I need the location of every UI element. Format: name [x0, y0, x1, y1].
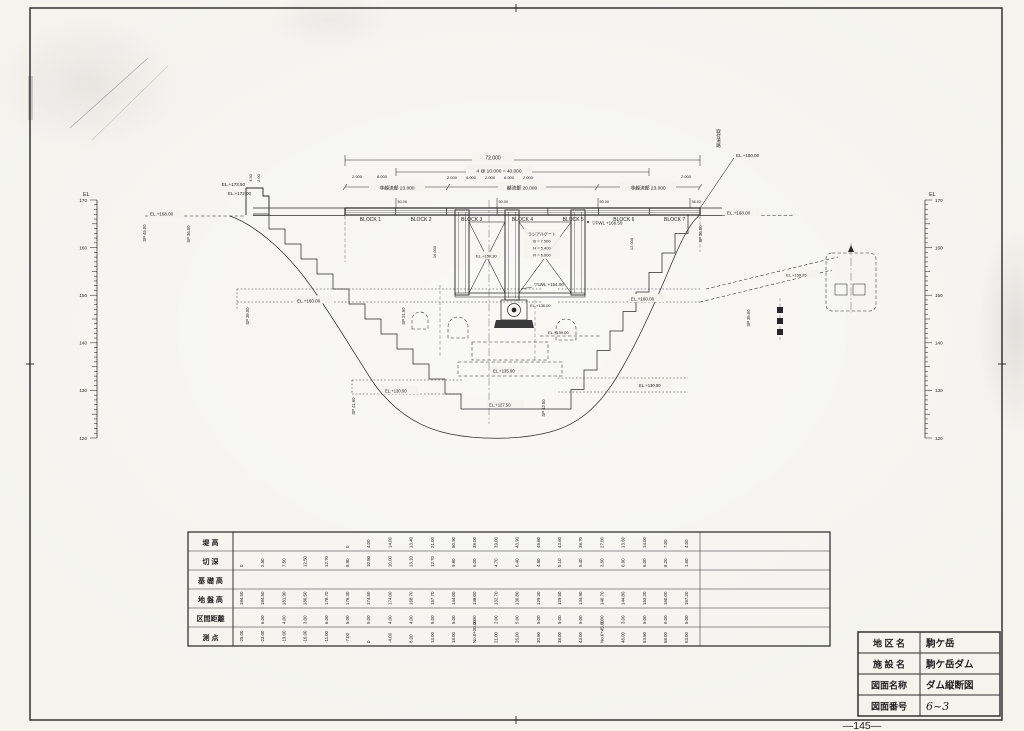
- table-value: 27.00: [599, 536, 604, 548]
- el-label: EL.+168.00: [150, 212, 174, 217]
- table-value: 5.10: [557, 558, 562, 567]
- table-value: 13.40: [409, 536, 414, 548]
- table-value: 18.00: [451, 631, 456, 643]
- hoist-axle: [512, 308, 517, 313]
- spillway-structure: ラジアルゲート B = 7.500 H = 5.400 R = 6.000 EL…: [455, 210, 585, 328]
- shaft-block: [777, 329, 783, 335]
- table-value: 0: [366, 640, 371, 643]
- table-row-label: 測 点: [203, 633, 219, 642]
- table-value: 181.90: [281, 591, 286, 605]
- table-value: 138.00: [472, 591, 477, 605]
- gate-r: R = 6.000: [533, 253, 551, 258]
- scale-tick-label: 160: [935, 245, 943, 250]
- dim-small: 6.000: [466, 175, 477, 180]
- el-label: EL.+160.00: [297, 299, 321, 304]
- table-value: 174.00: [387, 591, 392, 605]
- joint-mark-label: 50.00: [499, 200, 509, 204]
- sp-label: SP 35.00: [746, 309, 751, 327]
- table-value: 174.50: [366, 591, 371, 605]
- table-value: 7.00: [663, 539, 668, 548]
- table-value: 5.00: [366, 615, 371, 624]
- table-value: 144.00: [451, 591, 456, 605]
- sp-label: SP 21.50: [401, 307, 406, 325]
- table-value: 5.00: [345, 615, 350, 624]
- stilling-basin-upper: [472, 342, 548, 360]
- foundation-detail: EL.+135.00 EL.+127.50: [412, 312, 576, 408]
- table-value: 2.00: [493, 615, 498, 624]
- fold-line: [92, 66, 168, 140]
- el-label: EL.+159.30: [476, 254, 497, 259]
- outlet-bay: [853, 284, 865, 295]
- joint-mark-label: 50.00: [398, 200, 408, 204]
- dim-spacing-label: 4 @ 10.000 = 40.000: [476, 169, 521, 175]
- table-value: 6.00: [324, 615, 329, 624]
- border-rect: [30, 8, 1002, 720]
- gate-bay-dim: 12.000: [629, 237, 634, 250]
- table-value: 160.00: [663, 591, 668, 605]
- dim-small: 2.000: [523, 175, 534, 180]
- table-value: 5.00: [430, 615, 435, 624]
- table-value: 140.70: [599, 591, 604, 605]
- table-value: 6.00: [663, 615, 668, 624]
- table-value: 3.60: [599, 558, 604, 567]
- table-value: 4.00: [366, 539, 371, 548]
- table-row-label: 堤 高: [203, 538, 219, 547]
- title-label-facility: 施 設 名: [873, 659, 905, 670]
- dim-total-label: 72.000: [485, 156, 501, 162]
- scale-tick-label: 120: [935, 436, 943, 441]
- top-dimensions: 72.000 4 @ 10.000 = 40.000 非越流部 23.000 越…: [249, 152, 702, 258]
- block-label: BLOCK 3: [461, 217, 482, 223]
- table-value: -16.00: [303, 630, 308, 643]
- table-value: 39.00: [493, 536, 498, 548]
- table-value: 48.00: [621, 631, 626, 643]
- sp-label: SP 41.60: [351, 397, 356, 415]
- table-value: 50.90: [451, 536, 456, 548]
- parapet-dim: 2.00: [257, 174, 261, 181]
- table-value: 12.50: [303, 555, 308, 567]
- table-value: 8.90: [345, 558, 350, 567]
- table-row-label: 切 深: [203, 557, 219, 566]
- table-value: 8.20: [663, 558, 668, 567]
- table-value: 58.00: [663, 631, 668, 643]
- el-label: EL.+139.00: [548, 330, 569, 335]
- table-value: 4.00: [684, 539, 689, 548]
- table-value: 5.00: [536, 615, 541, 624]
- sill-beam: [455, 293, 585, 297]
- dim-small: 2.000: [681, 174, 692, 179]
- table-row-label: 基 礎 高: [197, 576, 223, 585]
- dim-small: 6.000: [504, 175, 515, 180]
- table-value: 6.40: [515, 558, 520, 567]
- table-value: 0: [345, 545, 350, 548]
- table-value: 2.50: [260, 558, 265, 567]
- table-value: 14.00: [642, 536, 647, 548]
- el-label: EL.+173.50: [222, 182, 246, 187]
- table-value: 38.00: [557, 631, 562, 643]
- title-value-facility: 駒ケ岳ダム: [925, 659, 974, 671]
- table-value: 5.00: [451, 615, 456, 624]
- el-label: EL.+136.00: [530, 303, 551, 308]
- block-label: BLOCK 5: [563, 217, 584, 223]
- scale-tick-label: 150: [79, 293, 87, 298]
- table-value: -4.00: [387, 632, 392, 643]
- table-value: 5.40: [578, 558, 583, 567]
- left-elevation-scale: EL170160150140130120: [79, 192, 97, 441]
- table-value: 6.00: [472, 558, 477, 567]
- table-value: 10.00: [387, 555, 392, 567]
- profile-data-table: 堤 高切 深基 礎 高地 盤 高区間距離測 点04.0014.0013.4021…: [188, 532, 830, 646]
- title-value-district: 駒ケ岳: [925, 638, 955, 650]
- scale-tick-label: 160: [79, 245, 87, 250]
- table-value: 129.50: [557, 591, 562, 605]
- title-label-drawing-number: 図面番号: [871, 701, 907, 712]
- joint-mark-label: 50.00: [600, 200, 610, 204]
- shaft-block: [777, 318, 783, 324]
- table-value: -7.00: [345, 632, 350, 643]
- table-value: 43.60: [557, 536, 562, 548]
- table-value: 53.50: [642, 631, 647, 643]
- table-value: 13.60: [621, 536, 626, 548]
- table-value: 153.20: [642, 591, 647, 605]
- table-value: 43.90: [515, 536, 520, 548]
- table-value: 9.80: [451, 558, 456, 567]
- table-value: No.0+20.00: [472, 620, 477, 643]
- table-value: 132.70: [493, 591, 498, 605]
- table-value: 6.00: [260, 615, 265, 624]
- dim-right-section: 非越流部 23.000: [630, 185, 666, 192]
- crest-band: [345, 208, 700, 215]
- scale-tick-label: 120: [79, 436, 87, 441]
- dim-center-section: 越流部 20.000: [507, 185, 538, 192]
- lwl-label: ▽LWL +154.00: [534, 282, 564, 287]
- dim-left-section: 非越流部 23.000: [379, 185, 415, 192]
- fold-line: [70, 58, 148, 128]
- table-value: 21.00: [493, 631, 498, 643]
- gate-b: B = 7.500: [533, 239, 551, 244]
- table-value: 12.70: [430, 555, 435, 567]
- joint-marks: 50.0050.0050.0036.02: [396, 198, 701, 208]
- pier-center: [505, 210, 519, 300]
- table-value: 30.50: [536, 631, 541, 643]
- scale-tick-label: 140: [79, 341, 87, 346]
- table-value: 13.00: [430, 631, 435, 643]
- shaft-block: [777, 307, 783, 313]
- table-value: 144.80: [621, 591, 626, 605]
- table-value: 134.90: [578, 591, 583, 605]
- gate-h: H = 5.400: [533, 246, 551, 251]
- table-value: 21.00: [430, 536, 435, 548]
- dim-small: 2.000: [485, 175, 496, 180]
- table-value: 10.50: [366, 555, 371, 567]
- table-value: 180.50: [303, 591, 308, 605]
- scale-tick-label: 130: [79, 388, 87, 393]
- road-leader: [700, 158, 734, 208]
- el-label: EL.+172.00: [228, 191, 252, 196]
- scale-tick-label: 150: [935, 293, 943, 298]
- table-value: 157.70: [430, 591, 435, 605]
- el-label: EL.+130.00: [639, 383, 661, 388]
- el-label: EL.+180.00: [736, 153, 760, 158]
- outlet-bay: [835, 284, 847, 295]
- table-value: 5.00: [684, 615, 689, 624]
- el-label: EL.+135.00: [493, 369, 515, 374]
- right-elevation-scale: EL170160150140130120: [925, 192, 943, 441]
- table-value: -19.00: [281, 630, 286, 643]
- el-label: EL.+127.50: [489, 403, 511, 408]
- table-value: 184.50: [239, 591, 244, 605]
- table-value: 3.00: [303, 615, 308, 624]
- axis-arrow: [848, 245, 854, 252]
- el-label: EL.+160.00: [631, 297, 655, 302]
- fwl-marker: [587, 221, 589, 223]
- scale-tick-label: 170: [935, 198, 943, 203]
- table-value: 8.00: [409, 634, 414, 643]
- sp-label: SP 45.00: [142, 224, 147, 242]
- table-row-label: 地 盤 高: [198, 595, 223, 604]
- block-label: BLOCK 7: [664, 217, 685, 223]
- el-label: EL.+130.00: [385, 389, 407, 394]
- joint-mark-label: 36.02: [692, 200, 702, 204]
- table-value: 5.00: [557, 615, 562, 624]
- table-value: 45.60: [536, 536, 541, 548]
- title-value-drawing-number: 6~3: [926, 700, 949, 713]
- table-value: 5.00: [642, 615, 647, 624]
- table-value: 38.00: [472, 536, 477, 548]
- table-value: 26.00: [515, 631, 520, 643]
- table-value: 43.00: [578, 631, 583, 643]
- table-value: 14.00: [387, 536, 392, 548]
- scan-artifacts: [28, 58, 168, 140]
- table-value: 178.70: [324, 591, 329, 605]
- dam-profile-drawing: EL170160150140130120 EL17016015014013012…: [0, 0, 1024, 731]
- table-value: -25.00: [239, 630, 244, 643]
- table-value: 12.70: [324, 555, 329, 567]
- table-value: 176.30: [345, 591, 350, 605]
- parapet-dim: 4.50: [249, 174, 253, 181]
- gallery-outline: [448, 317, 468, 338]
- scale-tick-label: 170: [79, 198, 87, 203]
- table-value: 6.00: [642, 558, 647, 567]
- title-label-district: 地 区 名: [873, 638, 905, 649]
- table-value: 5.00: [515, 615, 520, 624]
- table-value: 129.30: [536, 591, 541, 605]
- table-value: 4.00: [409, 615, 414, 624]
- block-label: BLOCK 2: [410, 217, 431, 223]
- block-label: BLOCK 6: [613, 217, 634, 223]
- table-value: 38.70: [578, 536, 583, 548]
- block-label: BLOCK 4: [512, 217, 533, 223]
- gallery-outline: [412, 312, 428, 329]
- table-value: 7.50: [281, 558, 286, 567]
- sp-label: SP 36.00: [698, 225, 703, 243]
- berm-lines: EL.+160.00 EL.+160.00 EL.+130.00 EL.+130…: [237, 289, 700, 394]
- dim-small: 8.000: [377, 174, 388, 179]
- table-value: 63.00: [684, 631, 689, 643]
- table-value: -23.00: [260, 630, 265, 643]
- gate-title: ラジアルゲート: [528, 231, 556, 237]
- table-value: 130.80: [515, 591, 520, 605]
- table-value: 167.20: [684, 591, 689, 605]
- table-value: 4.00: [387, 615, 392, 624]
- el-label: EL.+168.00: [727, 211, 751, 216]
- title-value-drawing-name: ダム縦断図: [926, 680, 974, 692]
- sp-label: SP 43.50: [541, 399, 546, 417]
- outlet-works: EL.+159.25: [700, 243, 876, 340]
- table-row-label: 区間距離: [197, 614, 225, 623]
- dim-small: 2.000: [447, 175, 458, 180]
- table-value: 6.90: [621, 558, 626, 567]
- pier-height-dim: 16.000: [432, 245, 437, 258]
- scale-tick-label: 130: [935, 388, 943, 393]
- block-label: BLOCK 1: [360, 217, 381, 223]
- table-value: 4.00: [281, 615, 286, 624]
- table-value: 3.00: [621, 615, 626, 624]
- excavation-steps-right: [558, 214, 688, 409]
- table-value: 0: [239, 564, 244, 567]
- table-value: -11.00: [324, 630, 329, 643]
- access-road-label: 取付道路: [716, 129, 722, 149]
- drawing-sheet: EL170160150140130120 EL17016015014013012…: [0, 0, 1024, 731]
- table-value: 1.60: [684, 558, 689, 567]
- conduit-line: [706, 257, 838, 289]
- table-value: 4.90: [536, 558, 541, 567]
- table-value: 5.00: [578, 615, 583, 624]
- sp-label: SP 36.00: [186, 225, 191, 243]
- dim-small: 2.000: [352, 174, 363, 179]
- table-value: 13.10: [409, 555, 414, 567]
- title-label-drawing-name: 図面名称: [871, 680, 907, 691]
- hoist-base: [494, 320, 534, 328]
- el-label: EL.+159.25: [786, 273, 807, 278]
- scale-tick-label: 140: [935, 341, 943, 346]
- sp-label: SP 39.00: [245, 307, 250, 325]
- table-value: 184.50: [260, 591, 265, 605]
- page-number: —145—: [843, 720, 882, 731]
- table-value: 4.70: [493, 558, 498, 567]
- table-value: 168.70: [409, 591, 414, 605]
- title-block: 地 区 名 駒ケ岳 施 設 名 駒ケ岳ダム 図面名称 ダム縦断図 図面番号 6~…: [858, 632, 1000, 716]
- table-value: No.0+45.00: [599, 620, 604, 643]
